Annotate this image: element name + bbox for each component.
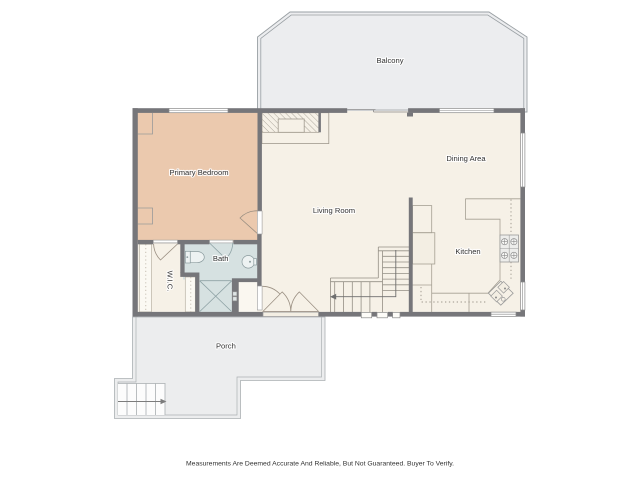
svg-text:Primary Bedroom: Primary Bedroom — [169, 168, 228, 177]
svg-text:Kitchen: Kitchen — [455, 247, 480, 256]
svg-text:Dining Area: Dining Area — [446, 154, 486, 163]
svg-text:Bath: Bath — [213, 254, 229, 263]
svg-text:Living Room: Living Room — [313, 206, 355, 215]
svg-text:Porch: Porch — [216, 341, 236, 350]
svg-text:Balcony: Balcony — [376, 56, 403, 65]
svg-text:W.I.C.: W.I.C. — [166, 271, 175, 292]
svg-text:Measurements Are Deemed Accura: Measurements Are Deemed Accurate And Rel… — [186, 461, 454, 468]
